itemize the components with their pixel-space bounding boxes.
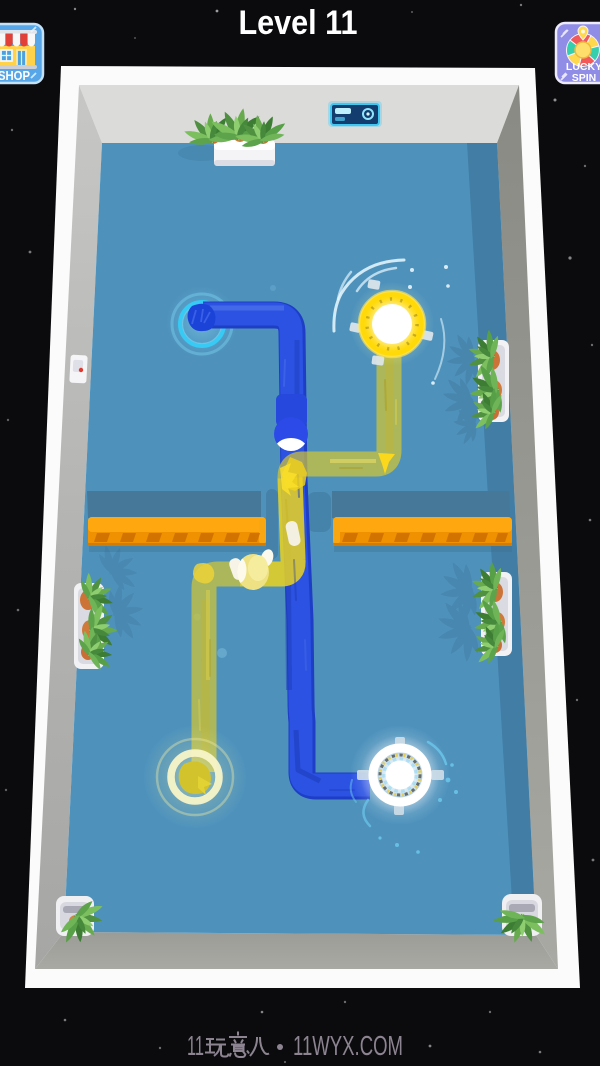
svg-text:11: 11 <box>187 1030 204 1061</box>
svg-text:SHOP: SHOP <box>0 69 30 83</box>
svg-text:SPIN: SPIN <box>572 72 597 84</box>
svg-text:Level 11: Level 11 <box>239 4 358 42</box>
svg-text:11WYX.COM: 11WYX.COM <box>293 1030 403 1061</box>
